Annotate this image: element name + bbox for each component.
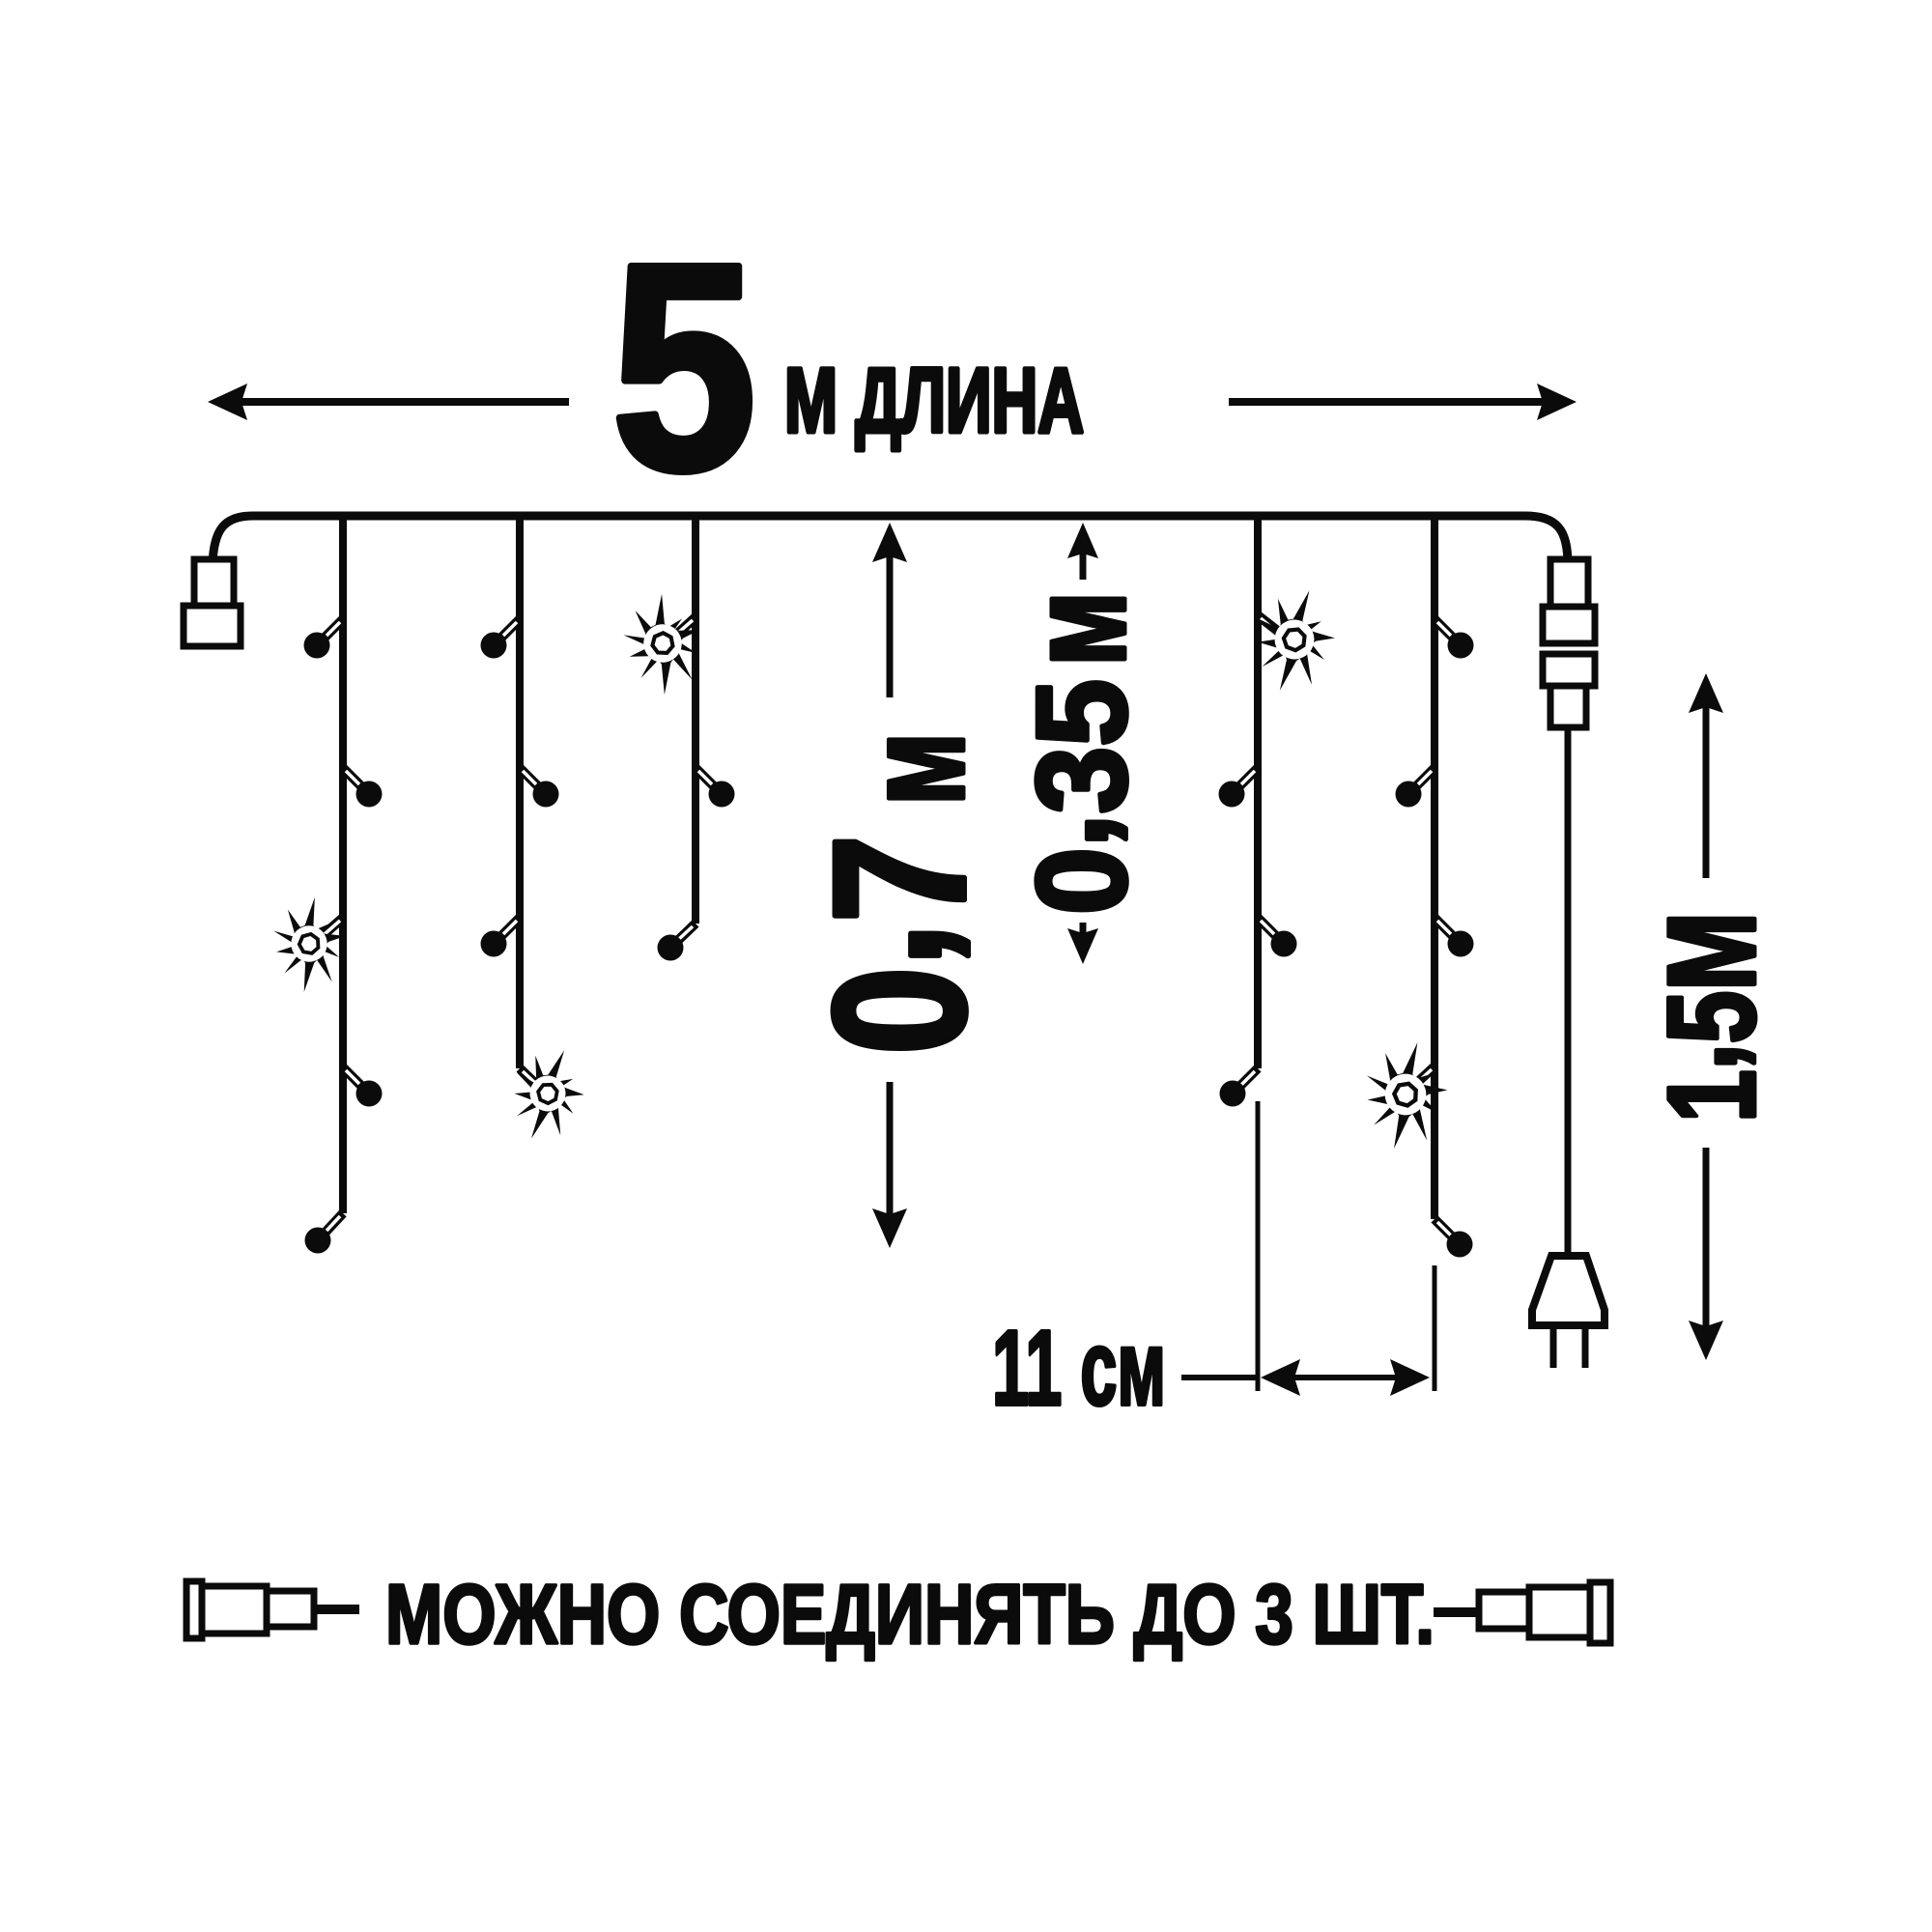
svg-text:1,5М: 1,5М <box>1624 912 1781 1122</box>
svg-text:0,7: 0,7 <box>770 835 1005 1055</box>
svg-text:МОЖНО СОЕДИНЯТЬ ДО 3 ШТ.: МОЖНО СОЕДИНЯТЬ ДО 3 ШТ. <box>385 1568 1435 1662</box>
svg-text:0,35: 0,35 <box>991 679 1152 915</box>
svg-text:м: м <box>837 732 993 806</box>
svg-text:М ДЛИНА: М ДЛИНА <box>784 350 1084 452</box>
svg-text:5: 5 <box>611 204 756 531</box>
svg-text:м: м <box>1001 591 1154 667</box>
svg-text:11 см: 11 см <box>992 1309 1166 1428</box>
